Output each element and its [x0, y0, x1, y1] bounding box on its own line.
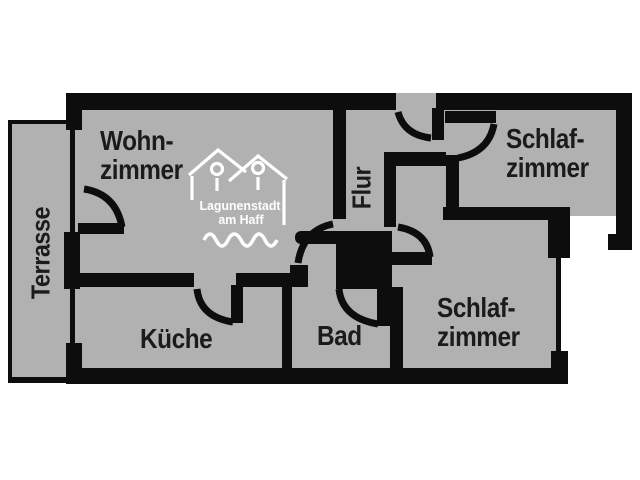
wall-right-stub	[608, 234, 632, 250]
schlafzimmer-bottom-label-line1: Schlaf-	[437, 293, 520, 322]
flur-label: Flur	[347, 167, 378, 209]
kueche-label: Küche	[140, 324, 212, 353]
sz2-door-leaf	[388, 252, 432, 265]
kueche-door-leaf	[231, 285, 243, 323]
wall-right	[616, 93, 632, 250]
wall-sz1-left	[446, 155, 459, 209]
floorplan-canvas: Wohn- zimmer Schlaf- zimmer Schlaf- zimm…	[0, 0, 640, 480]
wall-left-bottom-pier	[66, 343, 82, 384]
wohnzimmer-label-line1: Wohn-	[100, 126, 183, 155]
sz2-right-bottom-pier	[551, 351, 568, 372]
wall-wohnzimmer-flur	[333, 110, 346, 219]
schlafzimmer-bottom-label-line2: zimmer	[437, 322, 520, 351]
terrace-door-leaf	[78, 223, 124, 234]
terrasse-border-bottom	[8, 377, 68, 383]
wall-flur-niche-top	[388, 152, 446, 166]
floorplan-drawing	[0, 0, 640, 480]
entrance-door-leaf	[432, 108, 444, 140]
bad-label: Bad	[317, 321, 362, 350]
center-pillar	[336, 231, 392, 289]
wall-left-mid-pier	[64, 232, 80, 289]
sz1-door-leaf	[445, 111, 496, 123]
terrasse-border-top	[8, 120, 68, 124]
wohnzimmer-label-line2: zimmer	[100, 155, 183, 184]
schlafzimmer-bottom-label: Schlaf- zimmer	[437, 293, 520, 351]
wall-top-left-segment	[66, 93, 396, 110]
wall-left-top-pier	[66, 93, 82, 130]
wall-kueche-top-right	[236, 273, 308, 287]
schlafzimmer-top-label-line1: Schlaf-	[506, 124, 589, 153]
wall-kueche-bad	[282, 287, 292, 372]
logo-text-line1: Lagunenstadt	[200, 198, 281, 213]
wall-bad-sz2	[390, 287, 403, 372]
wall-kueche-top-left	[80, 273, 194, 287]
sz2-window-line	[556, 256, 561, 355]
wall-sz1-bottom	[443, 207, 570, 220]
bad-door-leaf	[377, 287, 390, 326]
sz2-right-top-pier	[548, 220, 570, 258]
schlafzimmer-top-label-line2: zimmer	[506, 153, 589, 182]
terrasse-border-left	[8, 120, 12, 381]
wohnzimmer-label: Wohn- zimmer	[100, 126, 183, 184]
logo-text-line2: am Haff	[218, 212, 263, 227]
wall-top-right-segment	[436, 93, 632, 110]
terrasse-label: Terrasse	[26, 207, 57, 299]
wall-bottom	[66, 368, 568, 384]
schlafzimmer-top-label: Schlaf- zimmer	[506, 124, 589, 182]
